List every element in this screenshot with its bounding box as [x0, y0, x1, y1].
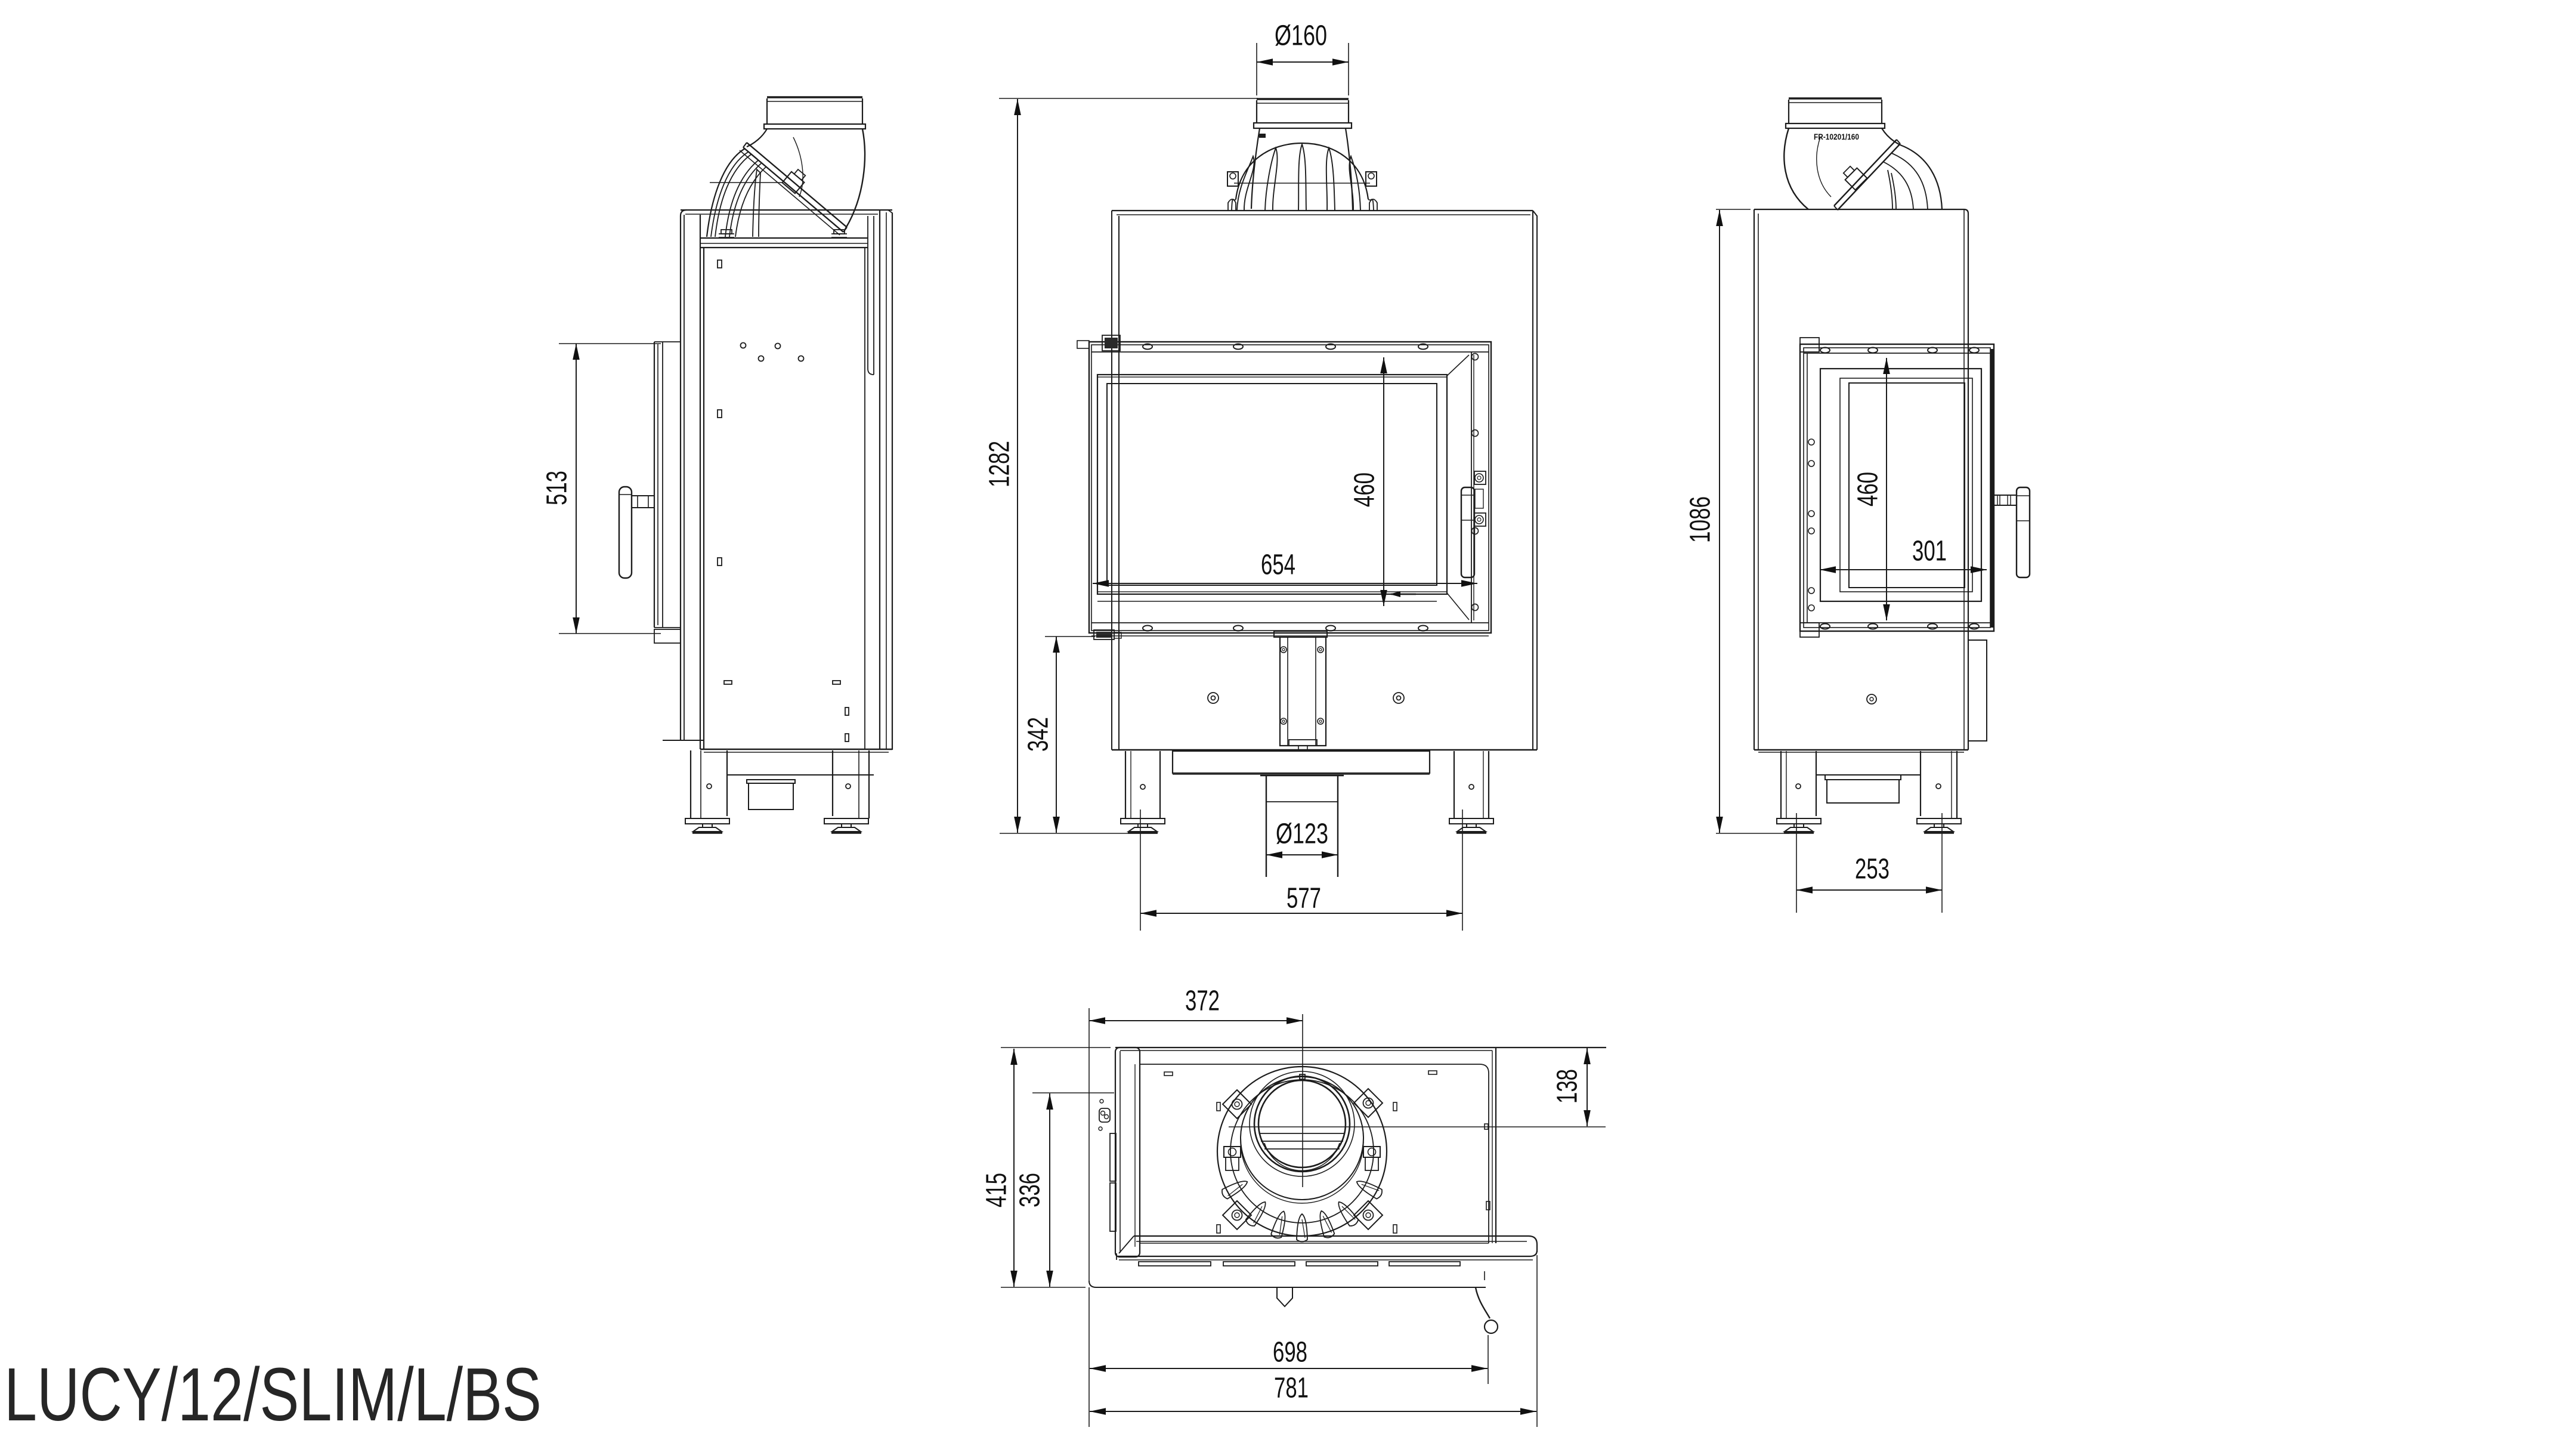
svg-text:781: 781	[1274, 1373, 1309, 1404]
svg-text:460: 460	[1349, 472, 1381, 507]
svg-text:FR-10201/160: FR-10201/160	[1814, 132, 1859, 141]
svg-text:138: 138	[1552, 1069, 1584, 1104]
svg-text:513: 513	[542, 471, 573, 505]
svg-text:654: 654	[1261, 549, 1295, 581]
svg-text:415: 415	[981, 1173, 1013, 1207]
svg-text:460: 460	[1853, 472, 1884, 506]
svg-text:Ø160: Ø160	[1275, 20, 1327, 52]
svg-text:577: 577	[1287, 883, 1321, 914]
svg-text:LUCY/12/SLIM/L/BS: LUCY/12/SLIM/L/BS	[4, 1352, 542, 1436]
svg-text:Ø123: Ø123	[1276, 818, 1328, 850]
svg-text:1282: 1282	[984, 441, 1016, 487]
svg-text:342: 342	[1023, 717, 1054, 752]
svg-text:253: 253	[1855, 854, 1890, 885]
svg-text:301: 301	[1912, 536, 1947, 567]
svg-text:336: 336	[1015, 1173, 1046, 1207]
svg-text:1086: 1086	[1685, 496, 1717, 543]
svg-text:698: 698	[1273, 1337, 1307, 1368]
svg-text:372: 372	[1185, 985, 1220, 1017]
